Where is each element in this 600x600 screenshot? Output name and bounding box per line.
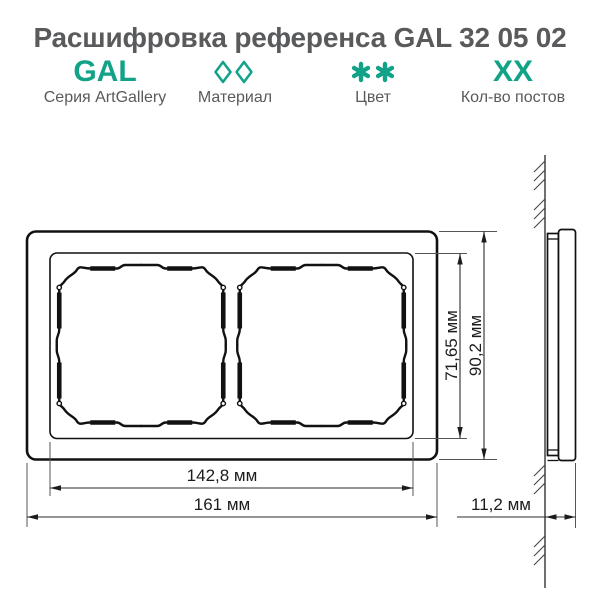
front-view — [27, 232, 437, 460]
frame-profile-back — [548, 234, 559, 456]
side-view — [534, 155, 576, 588]
wall-hatching — [534, 161, 545, 565]
dim-depth-label: 11,2 мм — [471, 495, 531, 514]
dim-outer-width-label: 161 мм — [194, 495, 250, 514]
dim-outer-height-label: 90,2 мм — [466, 315, 485, 376]
frame-profile-front — [559, 230, 576, 461]
dim-inner-width-label: 142,8 мм — [187, 466, 258, 485]
dim-inner-height-label: 71,65 мм — [442, 310, 461, 381]
technical-drawing: 71,65 мм 90,2 мм 142,8 мм 161 мм 11,2 мм — [0, 0, 600, 600]
inner-plate — [50, 253, 413, 439]
